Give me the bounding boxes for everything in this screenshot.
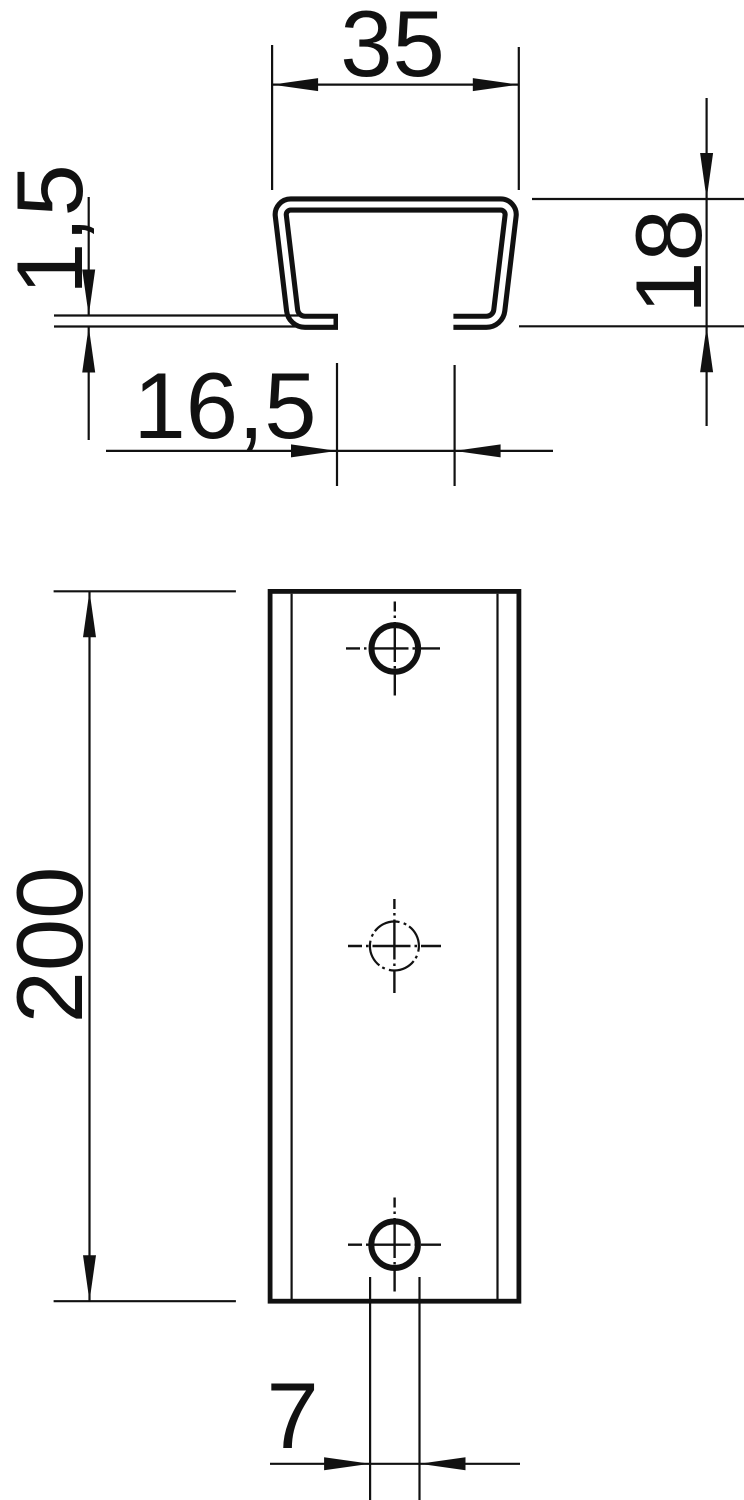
svg-text:7: 7 [267, 1363, 319, 1468]
svg-text:200: 200 [0, 867, 102, 1024]
svg-text:35: 35 [340, 0, 445, 96]
svg-text:1,5: 1,5 [0, 164, 102, 295]
svg-text:18: 18 [616, 209, 721, 314]
svg-text:16,5: 16,5 [134, 353, 317, 458]
